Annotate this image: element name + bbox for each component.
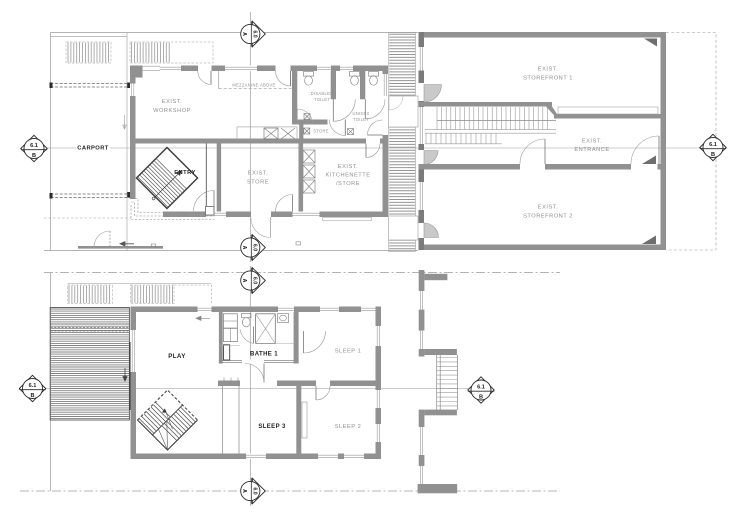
svg-text:KITCHENETTE: KITCHENETTE	[326, 173, 371, 179]
svg-text:DISABLED: DISABLED	[311, 91, 334, 96]
svg-text:WORKSHOP: WORKSHOP	[153, 108, 191, 114]
svg-text:MEZZANINE ABOVE: MEZZANINE ABOVE	[232, 83, 275, 88]
svg-text:STORE: STORE	[313, 129, 329, 134]
svg-text:ENTRANCE: ENTRANCE	[574, 147, 609, 153]
svg-text:B: B	[30, 393, 34, 399]
svg-text:EXIST.: EXIST.	[162, 99, 182, 105]
svg-text:SLEEP 1: SLEEP 1	[335, 349, 361, 355]
svg-text:6.1: 6.1	[709, 142, 717, 148]
svg-text:TOILET: TOILET	[314, 97, 330, 102]
svg-text:6.1: 6.1	[30, 143, 38, 149]
svg-text:A: A	[241, 279, 247, 283]
svg-text:A: A	[241, 246, 247, 250]
svg-text:AWNING: AWNING	[190, 213, 204, 217]
svg-text:6.0: 6.0	[252, 244, 258, 251]
svg-text:SLEEP 2: SLEEP 2	[335, 424, 361, 430]
svg-text:UNISEX: UNISEX	[352, 111, 369, 116]
svg-text:STORE: STORE	[247, 180, 269, 186]
svg-text:6.1: 6.1	[29, 383, 37, 389]
svg-text:B: B	[711, 152, 715, 158]
svg-text:EXIST.: EXIST.	[248, 171, 268, 177]
svg-text:B: B	[32, 153, 36, 159]
svg-text:BATHE 1: BATHE 1	[250, 352, 278, 358]
svg-text:ENTRY: ENTRY	[174, 170, 195, 176]
svg-text:EXIST.: EXIST.	[582, 139, 602, 145]
svg-text:TOILET: TOILET	[353, 117, 369, 122]
svg-text:6.1: 6.1	[477, 384, 485, 390]
svg-text:/STORE: /STORE	[336, 181, 360, 187]
svg-text:EXIST.: EXIST.	[538, 67, 558, 73]
svg-text:EXIST.: EXIST.	[338, 164, 358, 170]
svg-text:A: A	[241, 32, 247, 36]
svg-text:6.0: 6.0	[252, 30, 258, 37]
svg-text:SLEEP 3: SLEEP 3	[258, 424, 286, 430]
svg-text:A: A	[241, 489, 247, 493]
svg-text:PLAY: PLAY	[168, 353, 186, 360]
svg-text:CARPORT: CARPORT	[77, 146, 109, 152]
svg-text:STOREFRONT 1: STOREFRONT 1	[523, 76, 573, 82]
svg-text:STOREFRONT 2: STOREFRONT 2	[523, 214, 573, 220]
svg-text:6.0: 6.0	[252, 277, 258, 284]
svg-text:6.0: 6.0	[252, 487, 258, 494]
svg-text:EXIST.: EXIST.	[538, 205, 558, 211]
svg-text:B: B	[479, 395, 483, 401]
